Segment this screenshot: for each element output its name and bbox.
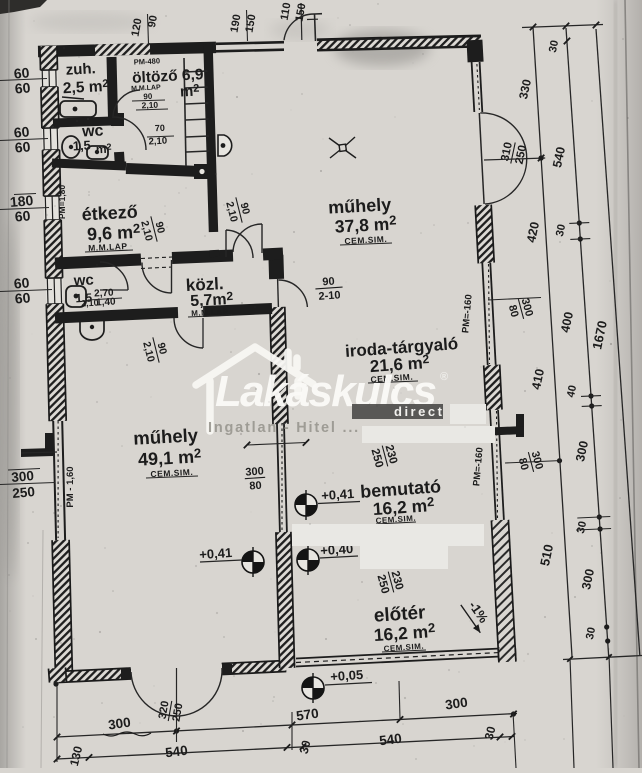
- svg-text:PM - 1,60: PM - 1,60: [65, 466, 76, 507]
- svg-text:wc: wc: [72, 271, 94, 289]
- svg-text:80: 80: [249, 480, 262, 493]
- svg-text:2,10: 2,10: [141, 100, 158, 111]
- svg-text:60: 60: [14, 79, 31, 96]
- svg-text:Ingatlan - Hitel ...: Ingatlan - Hitel ...: [208, 420, 360, 436]
- svg-text:37,8 m2: 37,8 m2: [334, 212, 397, 236]
- svg-text:70: 70: [155, 123, 166, 134]
- svg-text:+0,05: +0,05: [330, 667, 364, 684]
- svg-text:540: 540: [378, 731, 402, 749]
- svg-text:300: 300: [11, 468, 35, 485]
- svg-text:PM=1,80: PM=1,80: [57, 185, 67, 220]
- svg-text:16,2 m2: 16,2 m2: [373, 620, 436, 645]
- svg-text:570: 570: [295, 706, 319, 724]
- svg-text:60: 60: [14, 138, 31, 155]
- svg-text:540: 540: [164, 743, 188, 761]
- svg-text:+0,41: +0,41: [199, 545, 233, 562]
- svg-text:30: 30: [584, 626, 598, 640]
- svg-text:300: 300: [444, 695, 468, 713]
- svg-text:300: 300: [107, 715, 131, 733]
- svg-text:30: 30: [554, 223, 568, 237]
- svg-text:30: 30: [575, 520, 589, 534]
- svg-text:műhely: műhely: [133, 424, 199, 448]
- svg-text:40: 40: [565, 384, 579, 398]
- svg-text:®: ®: [440, 371, 448, 383]
- svg-text:60: 60: [14, 289, 31, 306]
- svg-text:étkező: étkező: [81, 202, 138, 225]
- svg-text:90: 90: [322, 276, 335, 289]
- svg-text:PM-480: PM-480: [134, 56, 161, 66]
- svg-text:1,5: 1,5: [72, 138, 91, 154]
- svg-text:zuh.: zuh.: [65, 60, 96, 79]
- svg-text:+0,41: +0,41: [321, 486, 355, 503]
- svg-text:250: 250: [12, 484, 36, 501]
- svg-text:direct: direct: [394, 404, 444, 419]
- svg-text:60: 60: [14, 207, 31, 224]
- svg-text:30: 30: [547, 39, 561, 53]
- svg-text:300: 300: [245, 465, 264, 478]
- svg-text:2-10: 2-10: [318, 289, 341, 303]
- svg-text:2,5 m2: 2,5 m2: [62, 78, 109, 97]
